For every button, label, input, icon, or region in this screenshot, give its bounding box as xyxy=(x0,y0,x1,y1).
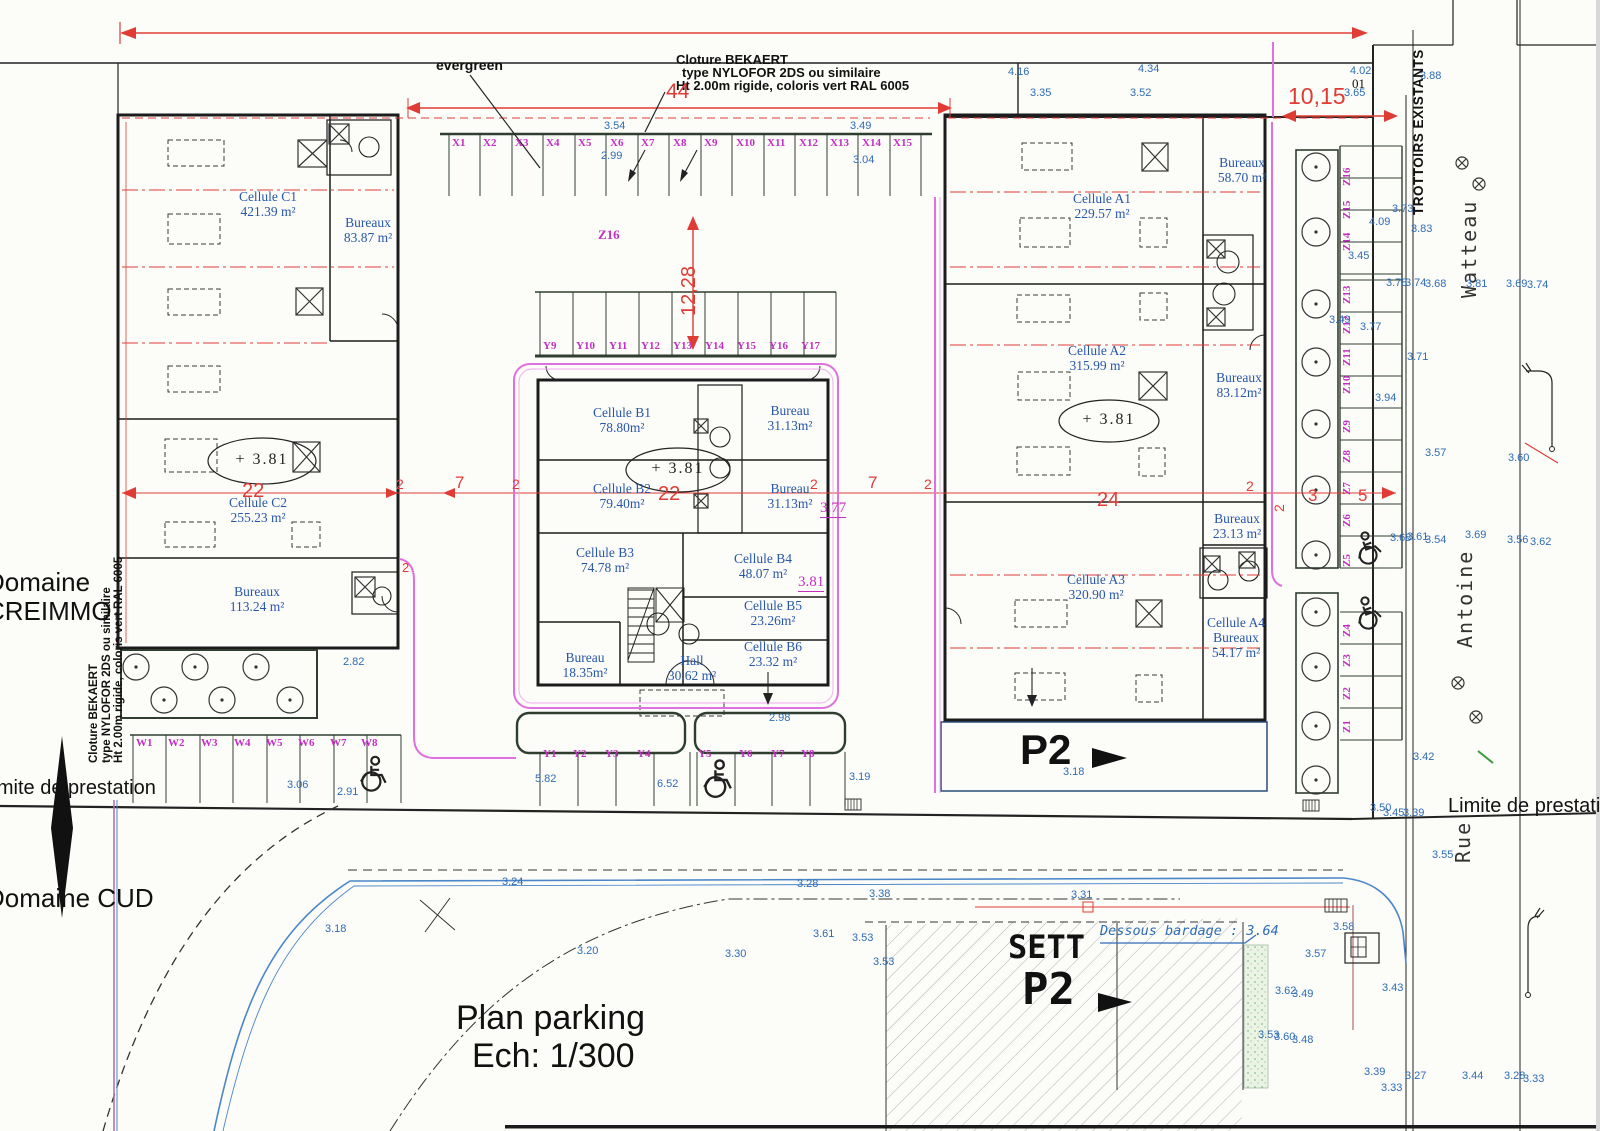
room-cellule-b5: Cellule B523.26m² xyxy=(744,599,802,629)
room-cellule-b3: Cellule B374.78 m² xyxy=(576,546,634,576)
spot-height: 3.65 xyxy=(1344,87,1365,99)
room-name: Cellule A3 xyxy=(1067,573,1125,588)
dim-label: 7 xyxy=(455,474,464,493)
spot-height: 3.74 xyxy=(1527,279,1548,291)
spot-height: 3.33 xyxy=(1523,1073,1544,1085)
room-area: 83.12m² xyxy=(1216,386,1262,401)
dim-label: 22 xyxy=(658,483,680,505)
room-name: Cellule B6 xyxy=(744,640,802,655)
spot-height: 3.55 xyxy=(1432,849,1453,861)
spot-height: 3.35 xyxy=(1030,87,1051,99)
stall-label-x14: X14 xyxy=(862,137,881,149)
spot-height: 3.61 xyxy=(813,928,834,940)
spot-height: 3.45 xyxy=(1383,807,1404,819)
spot-height: 3.77 xyxy=(1360,321,1381,333)
dim-label: 22 xyxy=(242,480,264,502)
spot-height: 3.49 xyxy=(850,120,871,132)
stall-label-x12: X12 xyxy=(799,137,818,149)
stall-label-z13: Z13 xyxy=(1341,286,1353,304)
room-area: 23.32 m² xyxy=(744,655,802,670)
room-cellule-b2: Cellule B279.40m² xyxy=(593,482,651,512)
spot-height: 3.30 xyxy=(725,948,746,960)
spot-height: 3.49 xyxy=(1329,314,1350,326)
stall-label-w1: W1 xyxy=(136,737,153,749)
dim-label: 2 xyxy=(1246,479,1254,494)
spot-height: 3.52 xyxy=(1130,87,1151,99)
stall-label-z10: Z10 xyxy=(1341,376,1353,394)
room-cellule-b6: Cellule B623.32 m² xyxy=(744,640,802,670)
floor-level-b2: 3.77 xyxy=(820,500,846,518)
sett-label: SETT xyxy=(1008,930,1085,965)
spot-height: 3.06 xyxy=(287,779,308,791)
room-area: 58.70 m² xyxy=(1218,171,1266,186)
spot-height: 2.99 xyxy=(601,150,622,162)
room-name: Bureau xyxy=(768,404,813,419)
room-name: Bureaux xyxy=(1216,371,1262,386)
room-area: 113.24 m² xyxy=(230,600,285,615)
spot-height: 3.53 xyxy=(873,956,894,968)
room-bureau-b2: Bureau31.13m² xyxy=(768,482,813,512)
room-cellule-b4: Cellule B448.07 m² xyxy=(734,552,792,582)
spot-height: 3.60 xyxy=(1508,452,1529,464)
spot-height: 3.24 xyxy=(502,876,523,888)
stall-label-y10: Y10 xyxy=(576,340,595,352)
stall-label-z7: Z7 xyxy=(1341,482,1353,495)
stall-label-w2: W2 xyxy=(168,737,185,749)
spot-height: 3.54 xyxy=(1425,534,1446,546)
spot-height: 3.18 xyxy=(325,923,346,935)
room-bureaux-c1: Bureaux83.87 m² xyxy=(344,216,392,246)
stall-label-z14: Z14 xyxy=(1341,233,1353,251)
street-rue: Rue xyxy=(1452,821,1474,863)
stall-label-w7: W7 xyxy=(330,737,347,749)
text-overlay: Plan parking Ech: 1/300 Cloture BEKAERT … xyxy=(0,0,1600,1131)
spot-height: 5.82 xyxy=(535,773,556,785)
dim-label: 2 xyxy=(402,561,409,575)
stall-label-y6: Y6 xyxy=(739,748,752,760)
stall-label-y17: Y17 xyxy=(801,340,820,352)
evergreen-label: evergreen xyxy=(436,58,503,73)
room-area: 83.87 m² xyxy=(344,231,392,246)
spot-height: 3.54 xyxy=(604,120,625,132)
stall-label-y4: Y4 xyxy=(637,748,650,760)
room-name: Cellule B2 xyxy=(593,482,651,497)
spot-height: 3.71 xyxy=(1407,351,1428,363)
room-name: Bureaux xyxy=(344,216,392,231)
stall-label-x15: X15 xyxy=(893,137,912,149)
spot-height: 3.69 xyxy=(1506,278,1527,290)
stall-label-y15: Y15 xyxy=(737,340,756,352)
spot-height: 3.68 xyxy=(1425,278,1446,290)
spot-height: 3.38 xyxy=(869,888,890,900)
spot-height: 3.74 xyxy=(1405,277,1426,289)
spot-height: 2.91 xyxy=(337,786,358,798)
page-scale: Ech: 1/300 xyxy=(472,1038,635,1075)
spot-height: 3.49 xyxy=(1292,988,1313,1000)
room-area: 79.40m² xyxy=(593,497,651,512)
room-area: 31.13m² xyxy=(768,497,813,512)
spot-height: 3.83 xyxy=(1411,223,1432,235)
spot-height: 3.56 xyxy=(1507,534,1528,546)
dessous-bardage-note: Dessous bardage : 3.64 xyxy=(1100,924,1279,939)
stall-label-y8: Y8 xyxy=(801,748,814,760)
room-name: Cellule B4 xyxy=(734,552,792,567)
room-name: Bureaux xyxy=(230,585,285,600)
level-oval-a: + 3.81 xyxy=(1082,411,1135,429)
room-name: Bureau xyxy=(768,482,813,497)
spot-height: 3.19 xyxy=(849,771,870,783)
spot-height: 4.09 xyxy=(1369,216,1390,228)
room-name: Cellule B3 xyxy=(576,546,634,561)
stall-label-z3: Z3 xyxy=(1341,654,1353,667)
stall-label-y14: Y14 xyxy=(705,340,724,352)
site-plan-page: Plan parking Ech: 1/300 Cloture BEKAERT … xyxy=(0,0,1600,1131)
spot-height: 3.94 xyxy=(1375,392,1396,404)
room-area: 320.90 m² xyxy=(1067,588,1125,603)
stall-label-z1: Z1 xyxy=(1341,720,1353,733)
spot-height: 3.62 xyxy=(1530,536,1551,548)
stall-label-y9: Y9 xyxy=(543,340,556,352)
stall-label-z2: Z2 xyxy=(1341,687,1353,700)
domaine-creimmo-label: Domaine CREIMMO xyxy=(0,568,136,625)
spot-height: 3.42 xyxy=(1413,751,1434,763)
spot-height: 3.28 xyxy=(797,878,818,890)
room-area: 30.62 m² xyxy=(668,669,716,684)
dim-label: 3 xyxy=(1308,487,1317,506)
spot-height: 3.20 xyxy=(577,945,598,957)
limite-left-label: limite de prestation xyxy=(0,777,156,799)
spot-height: 3.48 xyxy=(1292,1034,1313,1046)
room-area: 23.26m² xyxy=(744,614,802,629)
spot-height: 3.81 xyxy=(1466,278,1487,290)
spot-height: 3.69 xyxy=(1465,529,1486,541)
room-area: 255.23 m² xyxy=(229,511,287,526)
room-name: Bureaux xyxy=(1213,512,1261,527)
stall-label-y2: Y2 xyxy=(573,748,586,760)
stall-label-z16: Z16 xyxy=(1341,168,1353,186)
stall-label-w8: W8 xyxy=(361,737,378,749)
dim-label: 5 xyxy=(1358,487,1367,506)
room-name: Cellule B1 xyxy=(593,406,651,421)
room-area: 74.78 m² xyxy=(576,561,634,576)
stall-label-x6: X6 xyxy=(610,137,623,149)
sett-p2-label: P2 xyxy=(1022,966,1075,1014)
stall-label-z9: Z9 xyxy=(1341,420,1353,433)
spot-height: 4.34 xyxy=(1138,63,1159,75)
room-cellule-a1: Cellule A1229.57 m² xyxy=(1073,192,1131,222)
room-area: 421.39 m² xyxy=(239,205,297,220)
stall-label-z8: Z8 xyxy=(1341,450,1353,463)
page-title: Plan parking xyxy=(456,1000,645,1037)
stall-label-z4: Z4 xyxy=(1341,624,1353,637)
room-name: Cellule A4 xyxy=(1207,616,1265,631)
spot-height: 3.27 xyxy=(1405,1070,1426,1082)
room-area: 229.57 m² xyxy=(1073,207,1131,222)
fence-note-line3: Ht 2.00m rigide, coloris vert RAL 6005 xyxy=(676,79,909,93)
stall-label-w4: W4 xyxy=(234,737,251,749)
stall-label-w5: W5 xyxy=(266,737,283,749)
room-bureaux-a1: Bureaux58.70 m² xyxy=(1218,156,1266,186)
stall-label-y16: Y16 xyxy=(769,340,788,352)
spot-height: 4.02 xyxy=(1350,65,1371,77)
level-oval-b: + 3.81 xyxy=(651,460,704,478)
room-name: Bureau xyxy=(563,651,608,666)
spot-height: 3.88 xyxy=(1420,70,1441,82)
dim-label: 2 xyxy=(924,477,932,492)
dim-label: 44 xyxy=(666,80,689,103)
spot-height: 3.53 xyxy=(852,932,873,944)
room-cellule-a4: Cellule A4Bureaux54.17 m² xyxy=(1207,616,1265,661)
zone-z16-label: Z16 xyxy=(598,228,620,242)
room-area: 315.99 m² xyxy=(1068,359,1126,374)
stall-label-x2: X2 xyxy=(483,137,496,149)
spot-height: 3.57 xyxy=(1305,948,1326,960)
stall-label-x11: X11 xyxy=(767,137,785,149)
dim-label: 24 xyxy=(1097,489,1119,511)
room-name: Cellule B5 xyxy=(744,599,802,614)
limite-right-label: Limite de prestation xyxy=(1448,795,1600,817)
floor-level-b: 3.81 xyxy=(798,574,824,592)
spot-height: 3.31 xyxy=(1071,889,1092,901)
room-name: Bureaux xyxy=(1218,156,1266,171)
stall-label-y11: Y11 xyxy=(609,340,627,352)
spot-height: 3.57 xyxy=(1425,447,1446,459)
stall-label-x8: X8 xyxy=(673,137,686,149)
room-cellule-b1: Cellule B178.80m² xyxy=(593,406,651,436)
dim-label: 2 xyxy=(1272,504,1287,512)
stall-label-w6: W6 xyxy=(298,737,315,749)
spot-height: 3.39 xyxy=(1403,807,1424,819)
room-area: 31.13m² xyxy=(768,419,813,434)
spot-height: 3.33 xyxy=(1381,1082,1402,1094)
room-bureaux-c2: Bureaux113.24 m² xyxy=(230,585,285,615)
stall-label-y3: Y3 xyxy=(605,748,618,760)
spot-height: 4.16 xyxy=(1008,66,1029,78)
dim-label: 10,15 xyxy=(1288,84,1346,109)
stall-label-w3: W3 xyxy=(201,737,218,749)
spot-height: 3.18 xyxy=(1063,766,1084,778)
dim-label: 2 xyxy=(512,477,520,492)
room-name: Cellule A2 xyxy=(1068,344,1126,359)
stall-label-x4: X4 xyxy=(546,137,559,149)
room-name: Cellule A1 xyxy=(1073,192,1131,207)
stall-label-y13: Y13 xyxy=(673,340,692,352)
stall-label-x10: X10 xyxy=(736,137,755,149)
spot-height: 6.52 xyxy=(657,778,678,790)
stall-label-y12: Y12 xyxy=(641,340,660,352)
room-cellule-c1: Cellule C1421.39 m² xyxy=(239,190,297,220)
room-bureau-18: Bureau18.35m² xyxy=(563,651,608,681)
room-area: 78.80m² xyxy=(593,421,651,436)
stall-label-z5: Z5 xyxy=(1341,554,1353,567)
stall-label-x13: X13 xyxy=(830,137,849,149)
room-area: 23.13 m² xyxy=(1213,527,1261,542)
domaine-cud-label: Domaine CUD xyxy=(0,884,154,913)
room-cellule-a3: Cellule A3320.90 m² xyxy=(1067,573,1125,603)
room-area: 18.35m² xyxy=(563,666,608,681)
room-name: Hall xyxy=(668,654,716,669)
dim-label: 12,28 xyxy=(678,266,700,316)
stall-label-z6: Z6 xyxy=(1341,514,1353,527)
stall-label-y1: Y1 xyxy=(543,748,556,760)
stall-label-x5: X5 xyxy=(578,137,591,149)
stall-label-z15: Z15 xyxy=(1341,201,1353,219)
spot-height: 3.39 xyxy=(1364,1066,1385,1078)
dim-label: 2 xyxy=(810,477,818,492)
room-area: 54.17 m² xyxy=(1207,646,1265,661)
spot-height: 3.73 xyxy=(1392,203,1413,215)
stall-label-x7: X7 xyxy=(641,137,654,149)
stall-label-y5: Y5 xyxy=(698,748,711,760)
room-hall: Hall30.62 m² xyxy=(668,654,716,684)
level-oval-c: + 3.81 xyxy=(235,451,288,469)
spot-height: 3.45 xyxy=(1348,250,1369,262)
stall-label-y7: Y7 xyxy=(771,748,784,760)
room-area: 48.07 m² xyxy=(734,567,792,582)
room-sub: Bureaux xyxy=(1207,631,1265,646)
room-name: Cellule C1 xyxy=(239,190,297,205)
room-cellule-a2: Cellule A2315.99 m² xyxy=(1068,344,1126,374)
street-antoine: Antoine xyxy=(1454,550,1476,648)
dim-label: 7 xyxy=(868,474,877,493)
stall-label-x3: X3 xyxy=(515,137,528,149)
stall-label-x1: X1 xyxy=(452,137,465,149)
spot-height: 3.04 xyxy=(853,154,874,166)
spot-height: 2.98 xyxy=(769,712,790,724)
stall-label-z11: Z11 xyxy=(1341,348,1353,366)
room-bureaux-a2: Bureaux83.12m² xyxy=(1216,371,1262,401)
dim-label: 2 xyxy=(396,477,404,492)
spot-height: 3.43 xyxy=(1382,982,1403,994)
spot-height: 3.44 xyxy=(1462,1070,1483,1082)
room-bureau-b1: Bureau31.13m² xyxy=(768,404,813,434)
stall-label-x9: X9 xyxy=(704,137,717,149)
spot-height: 3.58 xyxy=(1333,921,1354,933)
room-bureaux-23: Bureaux23.13 m² xyxy=(1213,512,1261,542)
spot-height: 2.82 xyxy=(343,656,364,668)
